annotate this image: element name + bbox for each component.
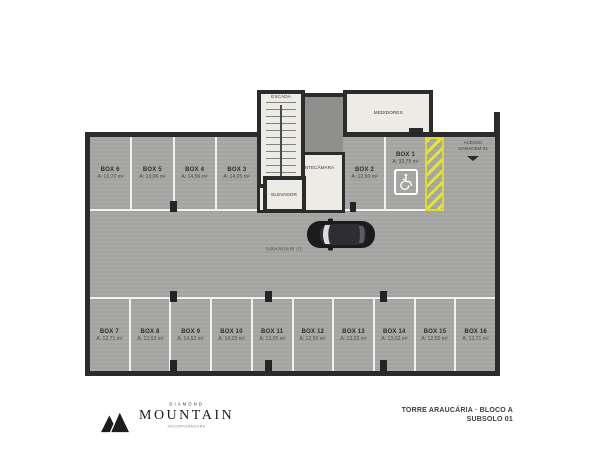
- parking-box: BOX 2 A: 12,50 m²: [345, 137, 384, 209]
- box-label: BOX 11: [261, 329, 283, 335]
- room-medidores-label: MEDIDORES: [373, 111, 402, 116]
- garage-ramp-hatch: [425, 137, 444, 211]
- box-area: A: 12,71 m²: [96, 336, 122, 341]
- box-area: A: 33,75 m²: [392, 159, 418, 164]
- garage-access-note: ACESSO GARAGEM 01: [447, 139, 499, 161]
- level-title: SUBSOLO 01: [402, 415, 513, 424]
- floorplan-page: BOX 6 A: 12,72 m² BOX 5 A: 13,06 m² BOX …: [0, 0, 600, 467]
- parking-box: BOX 15 A: 12,50 m²: [414, 299, 455, 371]
- box-label: BOX 3: [227, 167, 246, 173]
- box-label: BOX 16: [464, 329, 487, 335]
- parking-row-top-right: BOX 2 A: 12,50 m² BOX 1 A: 33,75 m²: [345, 137, 425, 211]
- box-area: A: 12,50 m²: [422, 336, 448, 341]
- box-area: A: 13,02 m²: [381, 336, 407, 341]
- parking-box: BOX 12 A: 12,50 m²: [292, 299, 333, 371]
- parking-box: BOX 16 A: 13,71 m²: [454, 299, 495, 371]
- parking-box: BOX 3 A: 14,25 m²: [215, 137, 257, 209]
- column: [265, 291, 272, 302]
- box-label: BOX 15: [424, 329, 447, 335]
- column: [170, 360, 177, 371]
- parking-box: BOX 10 A: 14,25 m²: [210, 299, 251, 371]
- box-area: A: 14,52 m²: [178, 336, 204, 341]
- box-area: A: 13,03 m²: [340, 336, 366, 341]
- stairs-icon: [266, 102, 296, 181]
- box-area: A: 12,50 m²: [351, 174, 377, 179]
- column: [380, 291, 387, 302]
- access-label-line2: GARAGEM 01: [454, 147, 493, 153]
- box-area: A: 13,06 m²: [139, 174, 165, 179]
- parking-box: BOX 4 A: 14,56 m²: [173, 137, 215, 209]
- garage-aisle-label: GARAGEM 01: [266, 247, 303, 252]
- box-area: A: 13,71 m²: [462, 336, 488, 341]
- box-area: A: 14,25 m²: [218, 336, 244, 341]
- box-area: A: 14,56 m²: [181, 174, 207, 179]
- box-label: BOX 2: [355, 167, 374, 173]
- box-area: A: 14,25 m²: [224, 174, 250, 179]
- parking-box: BOX 6 A: 12,72 m²: [90, 137, 130, 209]
- box-label: BOX 14: [383, 329, 406, 335]
- box-label: BOX 6: [101, 167, 120, 173]
- box-area: A: 13,05 m²: [259, 336, 285, 341]
- parking-box: BOX 5 A: 13,06 m²: [130, 137, 172, 209]
- box-label: BOX 10: [220, 329, 243, 335]
- box-label: BOX 1: [396, 152, 415, 158]
- sheet-title-block: TORRE ARAUCÁRIA · BLOCO A SUBSOLO 01: [402, 406, 513, 425]
- box-label: BOX 13: [342, 329, 365, 335]
- parking-box-accessible: BOX 1 A: 33,75 m²: [384, 137, 425, 209]
- box-label: BOX 9: [181, 329, 200, 335]
- column: [170, 291, 177, 302]
- column: [350, 202, 356, 212]
- room-elevador: ELEVADOR: [263, 176, 306, 213]
- column: [380, 360, 387, 371]
- brand-top-label: DIAMOND: [169, 403, 204, 407]
- brand-name-label: MOUNTAIN: [139, 408, 234, 424]
- room-escada: ESCADA: [257, 90, 305, 188]
- wall-stub: [494, 112, 500, 136]
- room-elevador-label: ELEVADOR: [272, 192, 298, 197]
- brand-logo: DIAMOND MOUNTAIN INCORPORADORA: [99, 402, 234, 434]
- parking-box: BOX 13 A: 13,03 m²: [332, 299, 373, 371]
- box-label: BOX 7: [100, 329, 119, 335]
- room-antecamara-label: ANTECÂMARA: [302, 166, 335, 171]
- wheelchair-icon: [397, 172, 414, 191]
- mountain-logo-icon: [99, 409, 131, 434]
- box-label: BOX 12: [302, 329, 325, 335]
- column: [265, 360, 272, 371]
- room-escada-label: ESCADA: [265, 95, 297, 100]
- parking-row-bottom: BOX 7 A: 12,71 m² BOX 8 A: 13,03 m² BOX …: [90, 297, 495, 371]
- brand-tagline: INCORPORADORA: [167, 425, 205, 428]
- door-icon: [409, 128, 423, 133]
- box-label: BOX 5: [143, 167, 162, 173]
- car-top-view: [306, 217, 376, 252]
- box-label: BOX 8: [141, 329, 160, 335]
- box-label: BOX 4: [185, 167, 204, 173]
- structural-shaft: [305, 93, 343, 155]
- box-area: A: 12,50 m²: [300, 336, 326, 341]
- box-area: A: 12,72 m²: [97, 174, 123, 179]
- project-title: TORRE ARAUCÁRIA · BLOCO A: [402, 406, 513, 415]
- parking-row-top: BOX 6 A: 12,72 m² BOX 5 A: 13,06 m² BOX …: [90, 137, 257, 211]
- down-arrow-icon: [467, 156, 479, 161]
- parking-box: BOX 7 A: 12,71 m²: [90, 299, 129, 371]
- room-medidores: MEDIDORES: [343, 90, 433, 136]
- parking-box: BOX 8 A: 13,03 m²: [129, 299, 170, 371]
- column: [170, 201, 177, 212]
- accessible-parking-badge: [394, 169, 418, 195]
- box-area: A: 13,03 m²: [137, 336, 163, 341]
